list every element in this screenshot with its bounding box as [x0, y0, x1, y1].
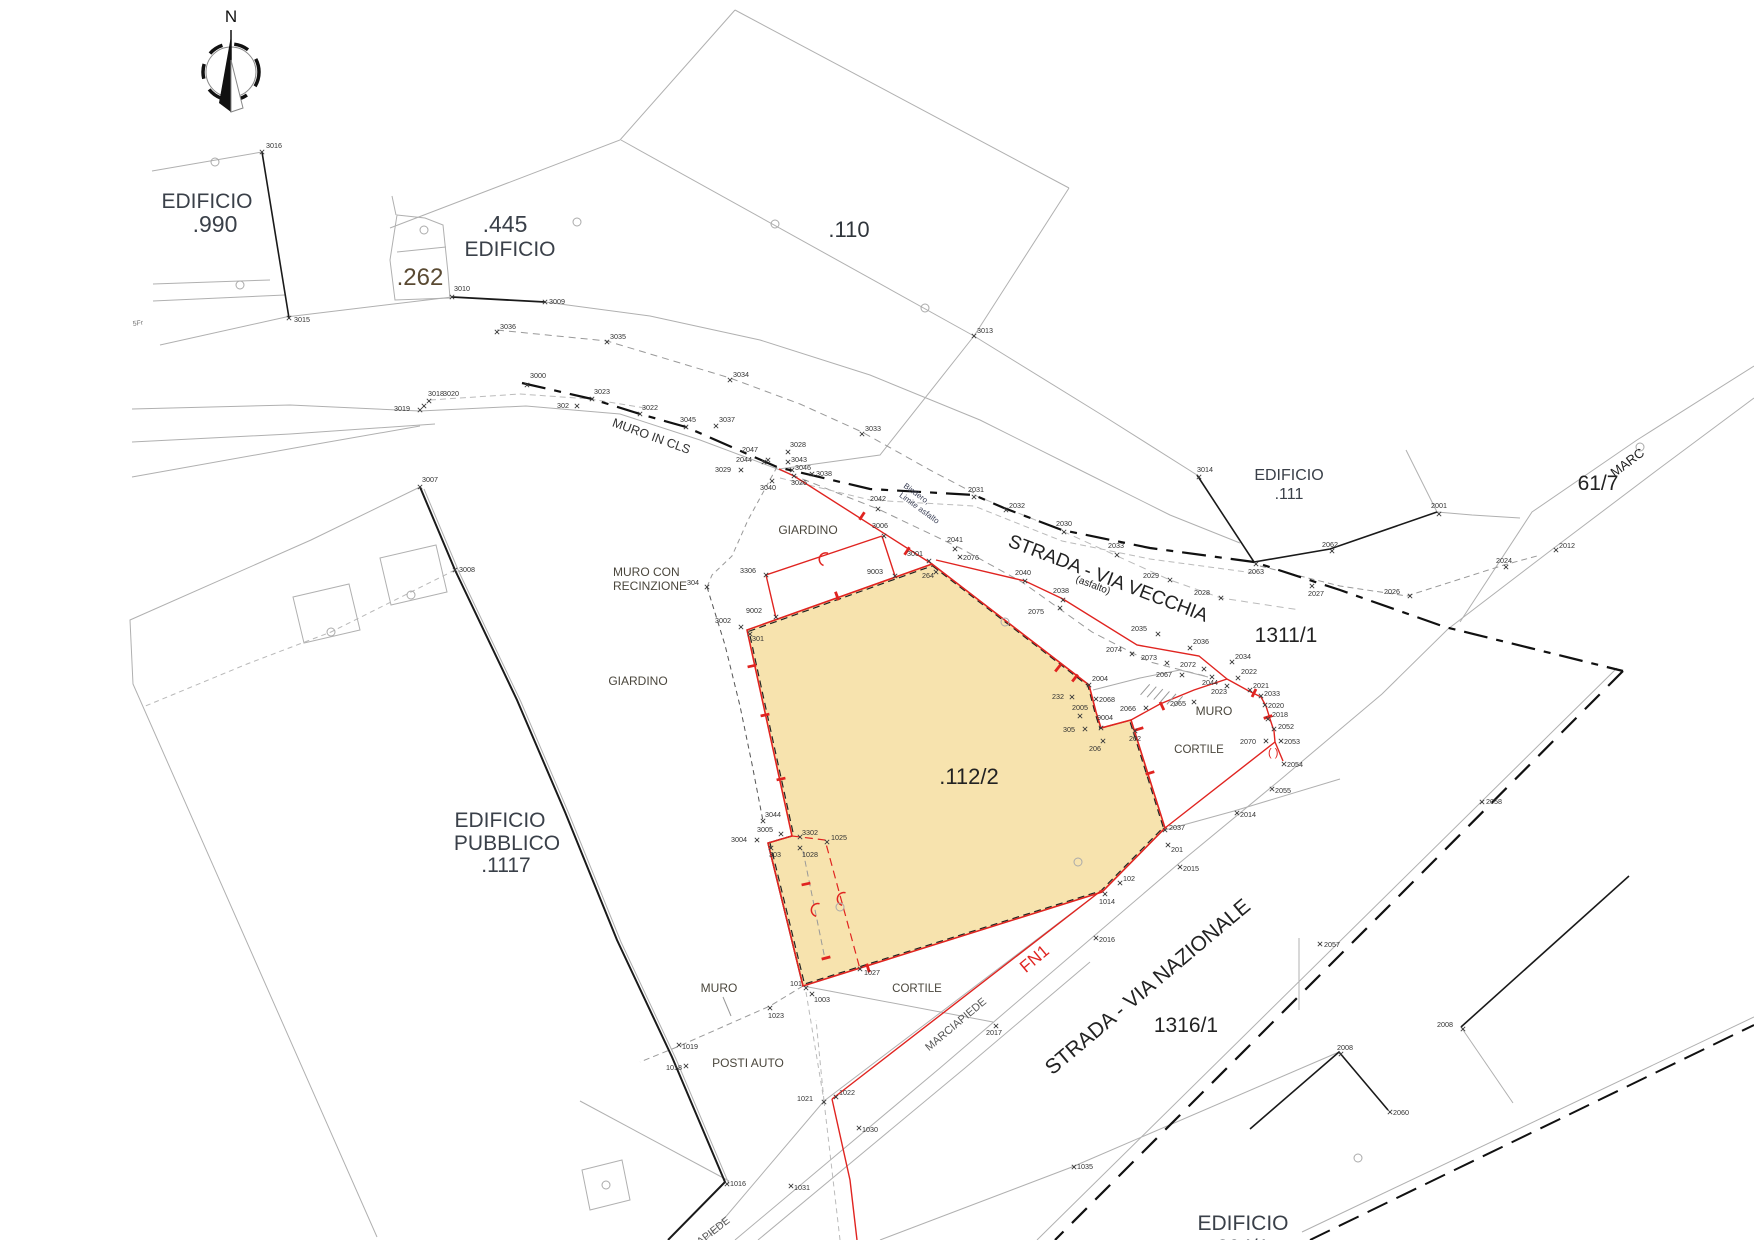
svg-text:302: 302 [557, 401, 569, 410]
svg-text:1025: 1025 [831, 833, 847, 842]
svg-text:101: 101 [790, 979, 802, 988]
svg-text:303: 303 [769, 850, 781, 859]
svg-text:2030: 2030 [1056, 519, 1072, 528]
svg-text:2036: 2036 [1193, 637, 1209, 646]
svg-text:CORTILE: CORTILE [892, 983, 942, 995]
svg-text:3014: 3014 [1197, 465, 1213, 474]
svg-text:2001: 2001 [1431, 501, 1447, 510]
svg-text:3018: 3018 [428, 389, 444, 398]
svg-text:9004: 9004 [1097, 713, 1113, 722]
svg-text:EDIFICIO: EDIFICIO [464, 238, 555, 261]
svg-text:2004: 2004 [1092, 674, 1108, 683]
svg-text:2072: 2072 [1180, 660, 1196, 669]
svg-text:GIARDINO: GIARDINO [778, 523, 837, 537]
svg-text:2075: 2075 [1028, 607, 1044, 616]
svg-text:.262: .262 [397, 264, 444, 291]
svg-text:102: 102 [1123, 874, 1135, 883]
svg-text:2017: 2017 [986, 1028, 1002, 1037]
svg-text:1031: 1031 [794, 1183, 810, 1192]
svg-text:3033: 3033 [865, 424, 881, 433]
svg-text:2005: 2005 [1072, 703, 1088, 712]
svg-text:3044: 3044 [765, 810, 781, 819]
svg-text:.445: .445 [483, 211, 528, 237]
svg-text:PUBBLICO: PUBBLICO [454, 832, 560, 855]
svg-text:2018: 2018 [1272, 710, 1288, 719]
svg-text:2023: 2023 [1211, 687, 1227, 696]
svg-text:3000: 3000 [530, 371, 546, 380]
svg-text:.1117: .1117 [481, 854, 530, 877]
svg-text:2062: 2062 [1322, 540, 1338, 549]
svg-text:3001: 3001 [907, 549, 923, 558]
svg-text:2033: 2033 [1264, 689, 1280, 698]
svg-text:2044: 2044 [1202, 678, 1218, 687]
svg-text:2044: 2044 [736, 455, 752, 464]
svg-text:EDIFICIO: EDIFICIO [161, 190, 252, 213]
svg-text:3005: 3005 [757, 825, 773, 834]
svg-text:1035: 1035 [1077, 1162, 1093, 1171]
svg-text:2029: 2029 [1143, 571, 1159, 580]
svg-text:2060: 2060 [1393, 1108, 1409, 1117]
svg-text:2055: 2055 [1275, 786, 1291, 795]
svg-text:2024: 2024 [1496, 556, 1512, 565]
svg-text:2015: 2015 [1183, 864, 1199, 873]
svg-text:1030: 1030 [862, 1125, 878, 1134]
svg-text:2012: 2012 [1559, 541, 1575, 550]
svg-text:EDIFICIO: EDIFICIO [454, 809, 545, 832]
svg-text:CORTILE: CORTILE [1174, 744, 1224, 756]
svg-text:MURO CON: MURO CON [613, 565, 680, 579]
svg-text:3007: 3007 [422, 475, 438, 484]
svg-text:2047: 2047 [742, 445, 758, 454]
svg-text:9002: 9002 [746, 606, 762, 615]
svg-text:1019: 1019 [682, 1042, 698, 1051]
svg-text:2076: 2076 [963, 553, 979, 562]
svg-text:.990: .990 [193, 211, 238, 237]
svg-text:2054: 2054 [1287, 760, 1303, 769]
svg-text:2066: 2066 [1120, 704, 1136, 713]
svg-text:2038: 2038 [1053, 586, 1069, 595]
svg-text:1027: 1027 [864, 968, 880, 977]
svg-text:2008: 2008 [1337, 1043, 1353, 1052]
svg-text:202: 202 [1129, 734, 1141, 743]
svg-text:2052: 2052 [1278, 722, 1294, 731]
svg-text:3020: 3020 [443, 389, 459, 398]
svg-text:3016: 3016 [266, 141, 282, 150]
svg-text:2067: 2067 [1156, 670, 1172, 679]
svg-text:3302: 3302 [802, 828, 818, 837]
svg-text:3037: 3037 [719, 415, 735, 424]
svg-text:N: N [225, 7, 237, 26]
svg-text:3002: 3002 [715, 616, 731, 625]
svg-text:3010: 3010 [454, 284, 470, 293]
svg-text:3306: 3306 [740, 566, 756, 575]
svg-text:3028: 3028 [790, 440, 806, 449]
svg-text:2008: 2008 [1437, 1020, 1453, 1029]
svg-text:2026: 2026 [1384, 587, 1400, 596]
svg-text:2063: 2063 [1248, 567, 1264, 576]
svg-text:201: 201 [1171, 845, 1183, 854]
svg-text:1014: 1014 [1099, 897, 1115, 906]
svg-text:3009: 3009 [549, 297, 565, 306]
svg-text:1016: 1016 [730, 1179, 746, 1188]
svg-text:2058: 2058 [1486, 797, 1502, 806]
svg-text:3015: 3015 [294, 315, 310, 324]
svg-text:3019: 3019 [394, 404, 410, 413]
svg-text:2065: 2065 [1170, 699, 1186, 708]
svg-text:.110: .110 [828, 217, 869, 242]
svg-text:1028: 1028 [802, 850, 818, 859]
svg-text:1023: 1023 [768, 1011, 784, 1020]
svg-text:3029: 3029 [715, 465, 731, 474]
svg-text:2037: 2037 [1169, 823, 1185, 832]
svg-text:3034: 3034 [733, 370, 749, 379]
svg-text:GIARDINO: GIARDINO [608, 674, 667, 688]
svg-text:2034: 2034 [1235, 652, 1251, 661]
svg-text:EDIFICIO: EDIFICIO [1197, 1212, 1288, 1235]
svg-text:.112/2: .112/2 [939, 764, 999, 789]
svg-text:RECINZIONE: RECINZIONE [613, 579, 687, 593]
svg-text:3008: 3008 [459, 565, 475, 574]
svg-text:305: 305 [1063, 725, 1075, 734]
svg-text:1003: 1003 [814, 995, 830, 1004]
svg-text:( ): ( ) [1268, 747, 1278, 759]
svg-text:MURO: MURO [701, 981, 738, 995]
svg-text:1316/1: 1316/1 [1154, 1014, 1218, 1037]
svg-text:3046: 3046 [795, 463, 811, 472]
svg-text:POSTI AUTO: POSTI AUTO [712, 1056, 784, 1070]
svg-text:301: 301 [752, 634, 764, 643]
svg-text:206: 206 [1089, 744, 1101, 753]
svg-text:232: 232 [1052, 692, 1064, 701]
svg-text:2041: 2041 [947, 535, 963, 544]
svg-text:MURO: MURO [1196, 704, 1233, 718]
svg-text:2016: 2016 [1099, 935, 1115, 944]
svg-text:2057: 2057 [1324, 940, 1340, 949]
svg-text:2032: 2032 [1009, 501, 1025, 510]
svg-text:3023: 3023 [594, 387, 610, 396]
svg-text:9003: 9003 [867, 567, 883, 576]
svg-text:2068: 2068 [1099, 695, 1115, 704]
svg-text:2028: 2028 [1194, 588, 1210, 597]
svg-text:264: 264 [922, 571, 934, 580]
svg-text:2053: 2053 [1284, 737, 1300, 746]
svg-text:304: 304 [687, 578, 699, 587]
svg-text:2073: 2073 [1141, 653, 1157, 662]
svg-text:2031: 2031 [968, 485, 984, 494]
svg-text:204/1: 204/1 [1217, 1236, 1270, 1240]
svg-text:3036: 3036 [500, 322, 516, 331]
svg-text:3004: 3004 [731, 835, 747, 844]
svg-text:2035: 2035 [1131, 624, 1147, 633]
svg-text:1018: 1018 [666, 1063, 682, 1072]
svg-text:2027: 2027 [1308, 589, 1324, 598]
svg-text:3026: 3026 [791, 478, 807, 487]
svg-text:2033: 2033 [1108, 541, 1124, 550]
svg-text:3038: 3038 [816, 469, 832, 478]
svg-text:2074: 2074 [1106, 645, 1122, 654]
svg-text:3045: 3045 [680, 415, 696, 424]
svg-text:EDIFICIO: EDIFICIO [1254, 467, 1323, 484]
svg-text:3035: 3035 [610, 332, 626, 341]
svg-text:3040: 3040 [760, 483, 776, 492]
svg-text:2020: 2020 [1268, 701, 1284, 710]
svg-text:2070: 2070 [1240, 737, 1256, 746]
svg-text:.111: .111 [1275, 486, 1304, 503]
svg-text:3013: 3013 [977, 326, 993, 335]
svg-text:3022: 3022 [642, 403, 658, 412]
svg-text:2042: 2042 [870, 494, 886, 503]
svg-text:1311/1: 1311/1 [1255, 624, 1318, 647]
svg-text:2022: 2022 [1241, 667, 1257, 676]
svg-text:1021: 1021 [797, 1094, 813, 1103]
svg-text:3006: 3006 [872, 521, 888, 530]
svg-text:2014: 2014 [1240, 810, 1256, 819]
svg-text:1022: 1022 [839, 1088, 855, 1097]
svg-text:2040: 2040 [1015, 568, 1031, 577]
